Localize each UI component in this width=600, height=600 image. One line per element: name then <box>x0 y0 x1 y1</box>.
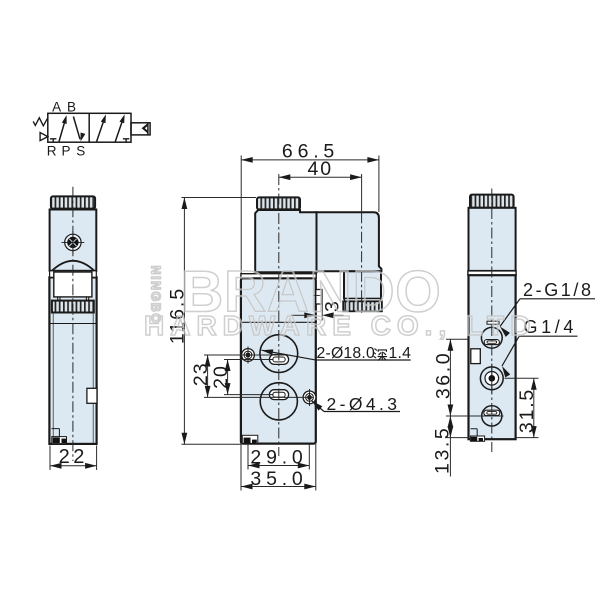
svg-text:A: A <box>52 100 61 115</box>
svg-text:20: 20 <box>210 365 232 389</box>
svg-text:35.0: 35.0 <box>250 468 307 490</box>
svg-text:S: S <box>76 144 85 159</box>
svg-text:36.0: 36.0 <box>433 351 455 399</box>
svg-text:31.5: 31.5 <box>516 388 538 433</box>
svg-text:2-Ø4.3: 2-Ø4.3 <box>327 394 401 414</box>
svg-text:13.5: 13.5 <box>431 426 453 474</box>
svg-text:B: B <box>67 100 76 115</box>
svg-text:NINGBO: NINGBO <box>149 266 163 325</box>
svg-text:2-Ø18.0: 2-Ø18.0 <box>317 345 375 362</box>
svg-text:P: P <box>61 144 70 159</box>
svg-text:2-G1/8: 2-G1/8 <box>523 280 594 300</box>
svg-text:23: 23 <box>190 362 212 386</box>
svg-text:40: 40 <box>307 158 333 180</box>
svg-text:1.4: 1.4 <box>389 345 412 362</box>
svg-text:HARDWARE CO., LTD: HARDWARE CO., LTD <box>144 310 536 341</box>
svg-text:R: R <box>47 144 57 159</box>
